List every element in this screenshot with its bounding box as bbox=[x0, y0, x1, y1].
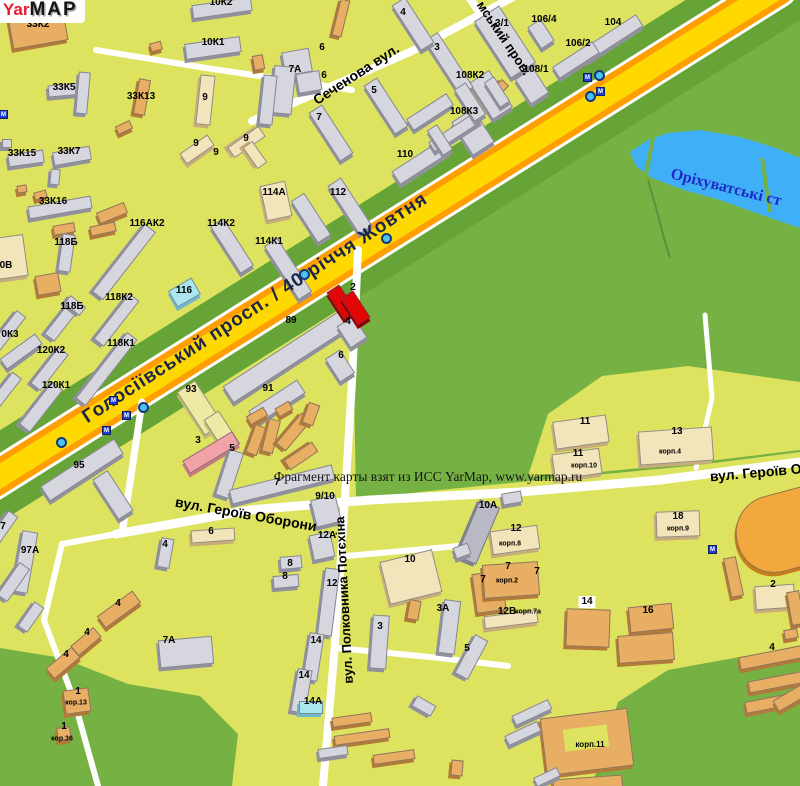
building-label: 114А bbox=[262, 188, 285, 198]
building-label: 4 bbox=[84, 628, 90, 638]
building-label: корп.9 bbox=[667, 526, 689, 533]
building-label: 118К1 bbox=[107, 339, 135, 349]
building-label: 7 bbox=[534, 567, 540, 577]
building-label: 18 bbox=[672, 512, 683, 522]
building-label: 7 bbox=[316, 113, 322, 123]
building-label: 7 bbox=[505, 562, 511, 572]
building-label: 9 bbox=[193, 139, 199, 149]
building-label: 14 bbox=[310, 636, 321, 646]
building-label: кор.36 bbox=[51, 736, 73, 743]
building-label: кор.13 bbox=[65, 700, 87, 707]
building-label: 7А bbox=[163, 636, 176, 646]
transit-stop-icon[interactable]: М bbox=[708, 545, 717, 554]
building-label: 10 bbox=[404, 555, 415, 565]
poi-marker-icon[interactable] bbox=[381, 233, 392, 244]
building-label: 8 bbox=[282, 572, 288, 582]
building-label: 106/4 bbox=[531, 15, 556, 25]
building-label: 5 bbox=[229, 444, 235, 454]
building-label: 12 bbox=[326, 579, 337, 589]
building-label: корп.11 bbox=[575, 741, 604, 749]
poi-marker-icon[interactable] bbox=[585, 91, 596, 102]
building-label: корп.4 bbox=[659, 449, 681, 456]
building-label: 104 bbox=[605, 18, 622, 28]
building-label: 9 bbox=[202, 93, 208, 103]
logo-text-yar: Yar bbox=[3, 0, 29, 19]
building-label: 89 bbox=[285, 316, 296, 326]
transit-stop-icon[interactable]: М bbox=[102, 426, 111, 435]
building-label: корп.8 bbox=[499, 541, 521, 548]
building-label: 5 bbox=[464, 644, 470, 654]
building-label: 4 bbox=[345, 317, 351, 327]
building-label: 33К16 bbox=[39, 197, 67, 207]
building-label: 120К2 bbox=[37, 346, 65, 356]
building-label: 13 bbox=[671, 427, 682, 437]
building-label: 1 bbox=[61, 722, 67, 732]
building-label: 33К5 bbox=[53, 83, 76, 93]
building-label: 108К3 bbox=[450, 107, 478, 117]
building-label: 16 bbox=[642, 606, 653, 616]
building-label: 4 bbox=[115, 599, 121, 609]
building-label: 118К2 bbox=[105, 293, 133, 303]
building-label: 116АК2 bbox=[129, 219, 164, 229]
building-label: 6 bbox=[208, 527, 214, 537]
building-label: 8 bbox=[287, 559, 293, 569]
building-label: 10А bbox=[479, 501, 497, 511]
building-label: корп.2 bbox=[496, 578, 518, 585]
building-label: 9/10 bbox=[315, 492, 334, 502]
building-label: 33К15 bbox=[8, 149, 36, 159]
building-label: 108К2 bbox=[456, 71, 484, 81]
building-label: 120К1 bbox=[42, 381, 70, 391]
building-label: 0К3 bbox=[1, 330, 18, 340]
transit-stop-icon[interactable]: М bbox=[583, 73, 592, 82]
logo-text-map: МАР bbox=[29, 0, 77, 20]
building-label: 1 bbox=[75, 687, 81, 697]
building-label: 3 bbox=[434, 43, 440, 53]
building-label: 95 bbox=[73, 461, 84, 471]
building-label: 91 bbox=[262, 384, 273, 394]
yarmap-logo: YarМАР bbox=[0, 0, 85, 23]
transit-stop-icon[interactable]: М bbox=[122, 411, 131, 420]
building-label: 116 bbox=[176, 286, 192, 296]
building-label: 11 bbox=[573, 449, 584, 459]
building-label: 33К13 bbox=[127, 92, 155, 102]
building-label: 6 bbox=[321, 71, 327, 81]
building-label: 4 bbox=[162, 540, 168, 550]
map-watermark: Фрагмент карты взят из ИСС YarMap, www.y… bbox=[274, 469, 583, 485]
building-label: 114К1 bbox=[255, 237, 283, 247]
transit-stop-icon[interactable]: М bbox=[0, 110, 8, 119]
building-label: 12А bbox=[318, 531, 336, 541]
building-label: 33К7 bbox=[58, 147, 81, 157]
building-label: 7 bbox=[480, 575, 486, 585]
poi-marker-icon[interactable] bbox=[56, 437, 67, 448]
poi-marker-icon[interactable] bbox=[138, 402, 149, 413]
building-label: корп.7а bbox=[515, 609, 541, 616]
building-label: 4 bbox=[769, 643, 775, 653]
building-label: 2 bbox=[770, 580, 776, 590]
building-label: 10К1 bbox=[202, 38, 225, 48]
building-label: 114К2 bbox=[207, 219, 235, 229]
building-label: 6 bbox=[319, 43, 325, 53]
transit-stop-icon[interactable]: М bbox=[109, 396, 118, 405]
poi-marker-icon[interactable] bbox=[594, 70, 605, 81]
building-label: 10К2 bbox=[210, 0, 233, 8]
building-label: 0В bbox=[0, 261, 12, 271]
building-label: 9 bbox=[213, 148, 219, 158]
building-label: 5 bbox=[371, 86, 377, 96]
building-label: 3/1 bbox=[495, 19, 509, 29]
building-label: 12 bbox=[510, 524, 521, 534]
building-label: 93 bbox=[185, 385, 196, 395]
building-label: 4 bbox=[400, 8, 406, 18]
building-label: 7А bbox=[289, 65, 302, 75]
building-label: 118Б bbox=[60, 302, 83, 312]
building-label: 3 bbox=[195, 436, 201, 446]
building-label: 2 bbox=[350, 283, 356, 293]
building-label: 3 bbox=[377, 622, 383, 632]
building-label: 7 bbox=[0, 522, 6, 532]
building-label: 12В bbox=[498, 607, 516, 617]
poi-marker-icon[interactable] bbox=[299, 269, 310, 280]
building-label: 14А bbox=[304, 697, 322, 707]
building-label: 97А bbox=[21, 546, 39, 556]
building-label: 108/1 bbox=[523, 65, 548, 75]
building-label: 4 bbox=[63, 650, 69, 660]
building-label: 3А bbox=[437, 604, 450, 614]
building-label: 11 bbox=[580, 417, 591, 427]
building-label: 110 bbox=[397, 150, 413, 160]
transit-stop-icon[interactable]: М bbox=[596, 87, 605, 96]
building-label: 6 bbox=[338, 351, 344, 361]
building-label: 14 bbox=[578, 596, 595, 608]
building-label: 106/2 bbox=[565, 39, 590, 49]
building-label: 14 bbox=[298, 671, 309, 681]
map-canvas[interactable]: Сеченова вул.Голосіївський просп. / 40-р… bbox=[0, 0, 800, 786]
building-label: 9 bbox=[243, 134, 249, 144]
building-label: 112 bbox=[330, 188, 346, 198]
building-label: 118Б bbox=[54, 238, 77, 248]
